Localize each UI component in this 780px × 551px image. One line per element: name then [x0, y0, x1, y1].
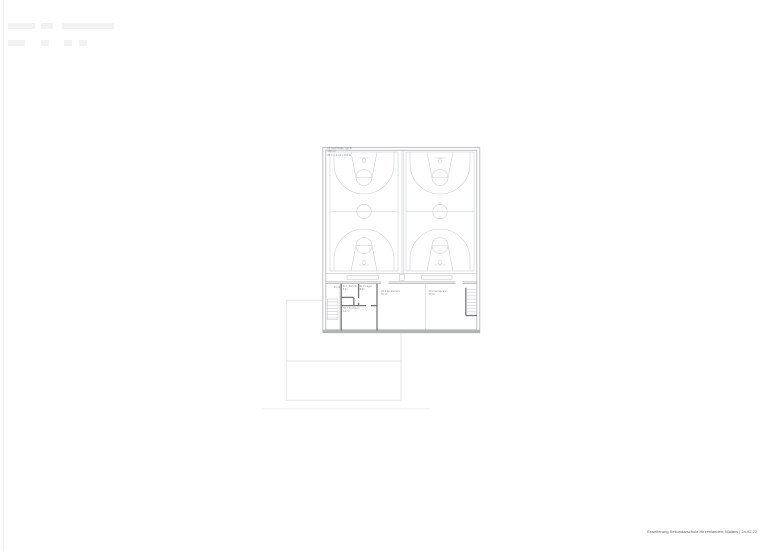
sheet-caption: Erweiterung Sekundarschule Hirzenlanden,…: [647, 529, 757, 534]
hall-strip-wall: [326, 281, 477, 285]
basketball-court-right: [406, 152, 474, 271]
door-opening: [358, 298, 361, 303]
room-label-geraeteraum-1: 03.1 Geräteraum 50 m²: [381, 291, 400, 297]
bench-left: [347, 276, 379, 279]
stair-left: [327, 299, 338, 319]
room-label-lager: 02.2 Lager 6 m²: [360, 286, 372, 292]
door-opening: [456, 281, 464, 285]
room-label-technik: 02.1 Technik 8 m²: [343, 286, 357, 292]
curtain-pocket: [400, 274, 405, 280]
sheet-fold-lines: [4, 0, 431, 551]
floor-plan-drawing: [0, 0, 780, 551]
bench-right: [422, 276, 453, 279]
stair-right: [466, 288, 477, 316]
dividing-curtain: [402, 150, 404, 273]
door-opening: [381, 281, 389, 285]
reference-mark-label: 01.05: [334, 287, 340, 290]
room-label-putzraum: 02.3 Putzraum 14 m²: [343, 308, 359, 314]
hall-title-label: 01 Sporthalle Typ B 968 m² 45.0 x 24.0 x…: [327, 147, 352, 157]
annex-building-outline: [286, 300, 401, 400]
hall-front-zone: [326, 273, 477, 280]
drawing-sheet: 01 Sporthalle Typ B 968 m² 45.0 x 24.0 x…: [0, 0, 780, 551]
door-opening: [366, 305, 371, 307]
room-label-geraeteraum-2: 03.2 Geräteraum 30 m²: [429, 291, 448, 297]
basketball-court-left: [330, 152, 398, 271]
